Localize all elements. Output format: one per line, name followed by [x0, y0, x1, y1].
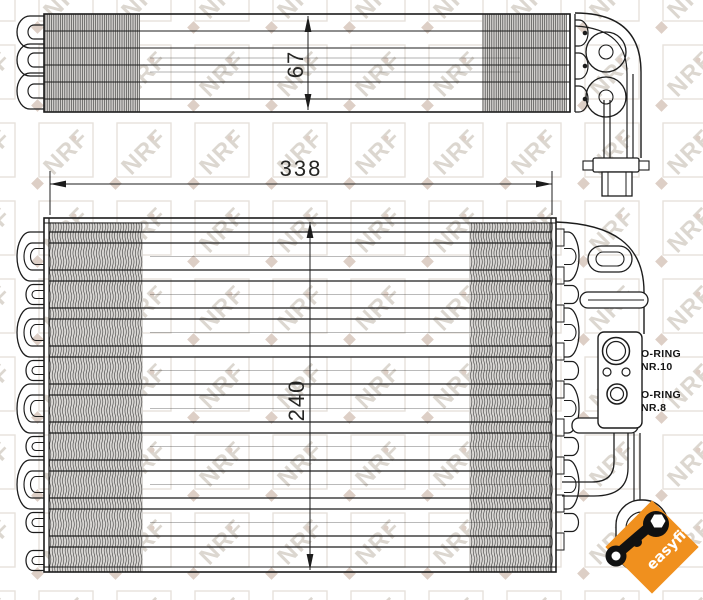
watermark-dot: [461, 525, 466, 530]
dimension-arrow: [50, 181, 66, 188]
watermark-diamond: [265, 567, 278, 580]
watermark-mark: NRF: [0, 124, 16, 180]
dim-value-depth: 67: [283, 50, 308, 78]
watermark-mark: NRF: [428, 46, 484, 102]
nrf-watermark-tile: NRF: [0, 411, 16, 492]
watermark-dot: [149, 135, 154, 140]
watermark-dot: [461, 135, 466, 140]
watermark-diamond: [655, 21, 668, 34]
watermark-diamond: [421, 489, 434, 502]
watermark-dot: [227, 135, 232, 140]
tube-end-stub: [556, 419, 564, 436]
nrf-watermark-tile: NRF: [343, 21, 406, 102]
nrf-watermark-tile: NRF: [343, 255, 406, 336]
right-cap-hairpin: [564, 249, 576, 265]
watermark-mark: NRF: [506, 592, 562, 600]
watermark-text: NRF: [584, 592, 640, 600]
watermark-diamond: [31, 567, 44, 580]
watermark-text: NRF: [194, 358, 250, 414]
nrf-watermark-tile: NRF: [265, 255, 328, 336]
watermark-mark: NRF: [0, 202, 16, 258]
watermark-text: NRF: [116, 124, 172, 180]
watermark-mark: NRF: [38, 592, 94, 600]
watermark-text: NRF: [662, 592, 703, 600]
watermark-dot: [227, 291, 232, 296]
right-cap-hairpin: [564, 477, 576, 493]
u-bend-inner: [24, 243, 44, 270]
u-bend-inner: [28, 53, 44, 67]
watermark-mark: NRF: [662, 46, 703, 102]
watermark-text: NRF: [194, 592, 250, 600]
watermark-text: NRF: [428, 592, 484, 600]
u-bend-small-inner: [32, 443, 44, 451]
watermark-mark: NRF: [0, 592, 16, 600]
watermark-mark: NRF: [194, 436, 250, 492]
nrf-watermark-tile: NRF: [655, 21, 703, 102]
watermark-diamond: [577, 567, 590, 580]
watermark-mark: NRF: [584, 436, 640, 492]
watermark-dot: [695, 291, 700, 296]
dimension-arrow: [305, 94, 312, 110]
watermark-mark: NRF: [350, 124, 406, 180]
watermark-text: NRF: [272, 436, 328, 492]
nrf-watermark-tile: NRF: [187, 411, 250, 492]
watermark-dot: [617, 447, 622, 452]
u-bend: [17, 44, 44, 76]
tube-end-stub: [556, 305, 564, 322]
watermark-text: NRF: [0, 514, 16, 570]
right-cap-small: [564, 438, 579, 456]
watermark-dot: [695, 447, 700, 452]
nrf-watermark-tile: NRF: [187, 0, 250, 24]
watermark-text: NRF: [0, 280, 16, 336]
watermark-dot: [383, 291, 388, 296]
technical-drawing-page: NRFNRFNRFNRFNRFNRFNRFNRFNRFNRFNRFNRFNRFN…: [0, 0, 703, 600]
watermark-text: NRF: [116, 592, 172, 600]
watermark-text: NRF: [662, 124, 703, 180]
u-bend-small: [26, 513, 44, 533]
nrf-watermark-tile: NRF: [265, 489, 328, 570]
watermark-diamond: [187, 99, 200, 112]
dimension-width: 338: [280, 156, 323, 181]
u-bend-small-inner: [32, 291, 44, 299]
watermark-mark: NRF: [272, 202, 328, 258]
evaporator-technical-drawing: NRFNRFNRFNRFNRFNRFNRFNRFNRFNRFNRFNRFNRFN…: [0, 0, 703, 600]
watermark-text: NRF: [0, 436, 16, 492]
nrf-watermark-tile: NRF: [187, 489, 250, 570]
watermark-text: NRF: [350, 592, 406, 600]
watermark-dot: [695, 525, 700, 530]
u-bend-small: [26, 361, 44, 381]
tube-end-stub: [556, 229, 564, 246]
watermark-frame: [39, 591, 93, 600]
nrf-watermark-tile: NRF: [421, 0, 484, 24]
watermark-diamond: [655, 99, 668, 112]
watermark-dot: [461, 447, 466, 452]
oring-8-line2: NR.8: [641, 402, 666, 414]
watermark-mark: NRF: [350, 358, 406, 414]
dimension-depth: 67: [283, 50, 308, 78]
watermark-text: NRF: [0, 124, 16, 180]
watermark-diamond: [421, 21, 434, 34]
watermark-mark: NRF: [350, 46, 406, 102]
watermark-text: NRF: [194, 202, 250, 258]
u-bend-small-inner: [32, 557, 44, 565]
watermark-diamond: [265, 21, 278, 34]
watermark-mark: NRF: [194, 46, 250, 102]
watermark-text: NRF: [350, 202, 406, 258]
nrf-watermark-tile: NRF: [655, 0, 703, 24]
nrf-watermark-tile: NRF: [265, 411, 328, 492]
watermark-text: NRF: [350, 46, 406, 102]
nrf-watermark-tile: NRF: [0, 0, 16, 24]
watermark-diamond: [187, 255, 200, 268]
pipe-loop-inner: [599, 45, 613, 59]
watermark-diamond: [343, 99, 356, 112]
nrf-watermark-tile: NRF: [577, 0, 640, 24]
tube-end-stub: [556, 267, 564, 284]
watermark-mark: NRF: [194, 592, 250, 600]
watermark-diamond: [187, 489, 200, 502]
watermark-mark: NRF: [350, 592, 406, 600]
nrf-watermark-tile: NRF: [343, 333, 406, 414]
watermark-dot: [617, 135, 622, 140]
watermark-frame: [0, 0, 15, 21]
watermark-diamond: [421, 255, 434, 268]
watermark-mark: NRF: [506, 124, 562, 180]
right-cap: [564, 308, 579, 357]
watermark-mark: NRF: [194, 124, 250, 180]
watermark-text: NRF: [194, 124, 250, 180]
watermark-mark: NRF: [272, 436, 328, 492]
watermark-diamond: [577, 177, 590, 190]
watermark-diamond: [343, 489, 356, 502]
watermark-text: NRF: [506, 592, 562, 600]
watermark-diamond: [187, 21, 200, 34]
watermark-diamond: [655, 333, 668, 346]
nrf-watermark-tile: NRF: [0, 333, 16, 414]
watermark-text: NRF: [662, 202, 703, 258]
nrf-watermark-tile: NRF: [655, 99, 703, 180]
watermark-text: NRF: [350, 124, 406, 180]
watermark-dot: [695, 135, 700, 140]
fitting-hex-body: [602, 172, 632, 196]
watermark-text: NRF: [194, 46, 250, 102]
watermark-diamond: [343, 567, 356, 580]
oring-10-line2: NR.10: [641, 361, 673, 373]
watermark-text: NRF: [662, 46, 703, 102]
watermark-dot: [227, 525, 232, 530]
watermark-frame: [507, 591, 561, 600]
watermark-mark: NRF: [38, 124, 94, 180]
watermark-diamond: [31, 255, 44, 268]
watermark-diamond: [31, 177, 44, 190]
flange-tab: [639, 161, 649, 170]
watermark-mark: NRF: [662, 592, 703, 600]
watermark-dot: [695, 213, 700, 218]
watermark-mark: NRF: [428, 592, 484, 600]
dimension-arrow: [536, 181, 552, 188]
tube-end-stub: [556, 495, 564, 512]
watermark-diamond: [655, 177, 668, 190]
nrf-watermark-tile: NRF: [343, 411, 406, 492]
watermark-frame: [117, 591, 171, 600]
watermark-diamond: [265, 255, 278, 268]
watermark-diamond: [343, 21, 356, 34]
watermark-text: NRF: [194, 436, 250, 492]
watermark-dot: [149, 447, 154, 452]
watermark-text: NRF: [0, 592, 16, 600]
watermark-dot: [383, 525, 388, 530]
watermark-text: NRF: [428, 124, 484, 180]
oring-label-nr10: O-RING NR.10: [641, 348, 681, 373]
watermark-mark: NRF: [662, 124, 703, 180]
watermark-diamond: [343, 255, 356, 268]
nrf-watermark-tile: NRF: [343, 0, 406, 24]
watermark-dot: [539, 135, 544, 140]
watermark-mark: NRF: [350, 436, 406, 492]
watermark-diamond: [187, 333, 200, 346]
nrf-watermark-tile: NRF: [0, 99, 16, 180]
watermark-text: NRF: [272, 592, 328, 600]
oring-10-line1: O-RING: [641, 348, 681, 360]
watermark-mark: NRF: [194, 358, 250, 414]
watermark-text: NRF: [506, 124, 562, 180]
watermark-diamond: [655, 489, 668, 502]
watermark-dot: [617, 213, 622, 218]
watermark-dot: [149, 291, 154, 296]
right-cap-small: [564, 514, 579, 532]
watermark-diamond: [265, 99, 278, 112]
top-view: [17, 13, 649, 196]
tube-end-dot: [583, 64, 588, 69]
wrench-ring-hole: [612, 552, 621, 561]
watermark-diamond: [421, 99, 434, 112]
watermark-dot: [461, 291, 466, 296]
watermark-text: NRF: [350, 358, 406, 414]
u-bend-small-inner: [32, 367, 44, 375]
watermark-dot: [617, 57, 622, 62]
nrf-watermark-tile: NRF: [0, 21, 16, 102]
watermark-mark: NRF: [662, 280, 703, 336]
watermark-diamond: [421, 333, 434, 346]
oring-8-line1: O-RING: [641, 389, 681, 401]
front-view: [17, 218, 668, 573]
watermark-text: NRF: [0, 202, 16, 258]
watermark-frame: [195, 591, 249, 600]
watermark-text: NRF: [0, 46, 16, 102]
dimension-arrow: [305, 16, 312, 32]
right-cap-small: [564, 362, 579, 380]
bolt-hole: [603, 368, 611, 376]
watermark-mark: NRF: [272, 592, 328, 600]
watermark-frame: [351, 591, 405, 600]
watermark-mark: NRF: [662, 436, 703, 492]
u-bend-small: [26, 285, 44, 305]
watermark-frame: [273, 591, 327, 600]
right-cap: [564, 232, 579, 281]
watermark-mark: NRF: [584, 592, 640, 600]
nrf-watermark-tile: NRF: [265, 0, 328, 24]
u-bend-small-inner: [32, 519, 44, 527]
nrf-watermark-tile: NRF: [421, 21, 484, 102]
watermark-mark: NRF: [194, 202, 250, 258]
watermark-mark: NRF: [116, 592, 172, 600]
watermark-mark: NRF: [662, 202, 703, 258]
watermark-dot: [227, 447, 232, 452]
watermark-diamond: [31, 99, 44, 112]
nrf-watermark-tile: NRF: [187, 21, 250, 102]
watermark-diamond: [343, 333, 356, 346]
watermark-dot: [149, 525, 154, 530]
watermark-mark: NRF: [0, 358, 16, 414]
watermark-text: NRF: [662, 436, 703, 492]
nrf-watermark-tile: NRF: [0, 255, 16, 336]
watermark-text: NRF: [0, 358, 16, 414]
nrf-watermark-tile: NRF: [0, 567, 16, 600]
nrf-watermark-tile: NRF: [187, 255, 250, 336]
watermark-mark: NRF: [116, 124, 172, 180]
nrf-watermark-tile: NRF: [187, 333, 250, 414]
dim-value-width: 338: [280, 156, 323, 181]
watermark-diamond: [421, 567, 434, 580]
nrf-watermark-tile: NRF: [343, 489, 406, 570]
watermark-mark: NRF: [0, 280, 16, 336]
nrf-watermark-tile: NRF: [0, 489, 16, 570]
watermark-mark: NRF: [0, 436, 16, 492]
watermark-text: NRF: [350, 436, 406, 492]
watermark-dot: [383, 447, 388, 452]
watermark-text: NRF: [428, 46, 484, 102]
watermark-text: NRF: [272, 202, 328, 258]
watermark-dot: [305, 135, 310, 140]
right-cap-small: [564, 286, 578, 304]
watermark-text: NRF: [38, 124, 94, 180]
nrf-watermark-tile: NRF: [655, 411, 703, 492]
watermark-diamond: [187, 567, 200, 580]
watermark-diamond: [265, 333, 278, 346]
flange-tab: [583, 161, 593, 170]
dimension-height: 240: [284, 379, 309, 422]
fitting-flange: [593, 158, 639, 172]
tube-end-dot: [583, 31, 588, 36]
nrf-watermark-tile: NRF: [655, 255, 703, 336]
right-cap: [564, 460, 579, 509]
watermark-mark: NRF: [0, 46, 16, 102]
watermark-text: NRF: [584, 436, 640, 492]
watermark-text: NRF: [662, 280, 703, 336]
watermark-dot: [383, 135, 388, 140]
u-bend-small: [26, 437, 44, 457]
watermark-mark: NRF: [0, 514, 16, 570]
dim-value-height: 240: [284, 379, 309, 422]
tube-end-stub: [556, 381, 564, 398]
right-cap-hairpin: [564, 401, 576, 417]
right-cap-hairpin: [564, 325, 576, 341]
watermark-frame: [429, 591, 483, 600]
watermark-diamond: [265, 489, 278, 502]
watermark-dot: [71, 135, 76, 140]
watermark-text: NRF: [38, 592, 94, 600]
nrf-watermark-tile: NRF: [0, 177, 16, 258]
watermark-diamond: [31, 21, 44, 34]
watermark-diamond: [655, 255, 668, 268]
watermark-mark: NRF: [428, 124, 484, 180]
watermark-frame: [585, 591, 639, 600]
watermark-mark: NRF: [350, 202, 406, 258]
watermark-dot: [695, 369, 700, 374]
watermark-dot: [695, 57, 700, 62]
bolt-hole: [622, 368, 630, 376]
wrench-joint: [632, 537, 642, 547]
nrf-watermark-tile: NRF: [655, 177, 703, 258]
